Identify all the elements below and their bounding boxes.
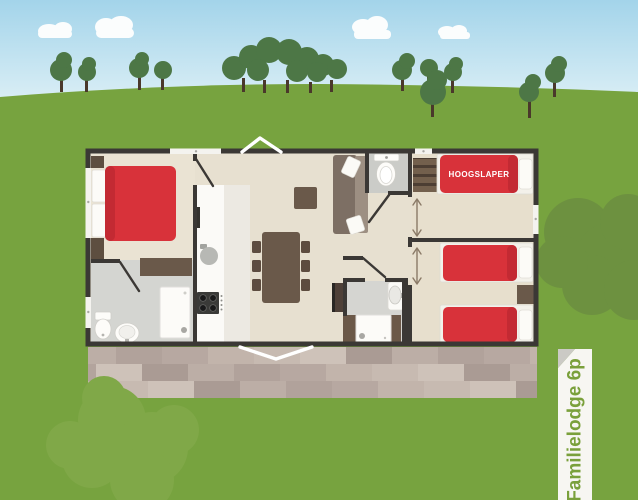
terrace-brick [332, 381, 378, 398]
mattress [443, 307, 517, 342]
wall-cabinet [332, 283, 343, 312]
terrace-brick [142, 364, 188, 381]
bunk-bed-hoogslaper: HOOGSLAPER [437, 154, 533, 194]
wall-segment [343, 278, 365, 282]
wall-segment [193, 185, 197, 342]
ladder [413, 158, 439, 192]
terrace-brick [392, 347, 438, 364]
terrace-brick [470, 381, 516, 398]
closet [343, 315, 356, 343]
terrace-brick [148, 381, 194, 398]
wall-segment [388, 191, 410, 195]
mattress-fold [507, 245, 517, 281]
closet [391, 315, 401, 343]
scene-canvas: HOOGSLAPER [0, 0, 638, 500]
terrace-brick [280, 364, 326, 381]
shower [356, 315, 391, 343]
wall-segment [91, 259, 120, 263]
stove [197, 292, 223, 314]
bunk-bed-label: HOOGSLAPER [449, 170, 510, 179]
lodge-type-ribbon: Familielodge 6p [558, 349, 592, 500]
lodge-floorplan-scene: HOOGSLAPER [0, 0, 638, 500]
terrace-bricks [88, 347, 537, 398]
pillow [92, 204, 107, 237]
nightstand [91, 156, 104, 168]
terrace-brick [286, 381, 332, 398]
wardrobe [140, 258, 192, 276]
terrace-brick [188, 364, 234, 381]
toilet [95, 312, 111, 339]
chair [301, 241, 310, 253]
pillow [519, 310, 532, 340]
terrace-brick [378, 381, 424, 398]
terrace [88, 347, 537, 398]
pillow [519, 247, 532, 278]
chair [252, 279, 261, 291]
terrace-brick [438, 347, 484, 364]
cloud [95, 16, 134, 38]
chair [301, 260, 310, 272]
terrace-brick [530, 347, 537, 364]
wall-segment [402, 278, 408, 342]
chair [301, 279, 310, 291]
terrace-brick [240, 381, 286, 398]
ribbon-label: Familielodge 6p [565, 358, 586, 500]
mattress-fold [508, 155, 518, 193]
terrace-brick [346, 347, 392, 364]
terrace-brick [234, 364, 280, 381]
terrace-brick [194, 381, 240, 398]
terrace-brick [88, 347, 116, 364]
dining-table [262, 232, 300, 303]
mattress-fold [105, 166, 115, 241]
mattress [443, 245, 517, 281]
wall-segment [408, 285, 412, 342]
terrace-brick [162, 347, 208, 364]
wall-segment [365, 153, 369, 193]
wall-segment [408, 153, 412, 197]
terrace-brick [116, 347, 162, 364]
pillow [92, 170, 107, 202]
terrace-brick [516, 381, 537, 398]
wall-segment [408, 238, 534, 242]
terrace-brick [424, 381, 470, 398]
nightstand [517, 285, 534, 304]
wall-segment [343, 256, 363, 260]
terrace-brick [418, 364, 464, 381]
coffee-table [294, 187, 317, 209]
mattress-fold [507, 307, 517, 342]
pillow [519, 159, 532, 189]
single-bed-2 [440, 305, 533, 343]
kitchen-floor-zone [224, 185, 250, 342]
wall-segment [343, 282, 347, 316]
mattress [105, 166, 176, 241]
single-bed-1 [440, 243, 533, 282]
terrace-brick [372, 364, 418, 381]
chair [252, 260, 261, 272]
nightstand [91, 238, 104, 260]
terrace-brick [326, 364, 372, 381]
lodge-floorplan: HOOGSLAPER [86, 138, 539, 359]
bedroom-1-furniture: HOOGSLAPER [413, 154, 533, 194]
terrace-brick [510, 364, 537, 381]
sofa [333, 155, 368, 235]
terrace-brick [484, 347, 530, 364]
chair [252, 241, 261, 253]
shower [160, 287, 190, 338]
terrace-brick [464, 364, 510, 381]
